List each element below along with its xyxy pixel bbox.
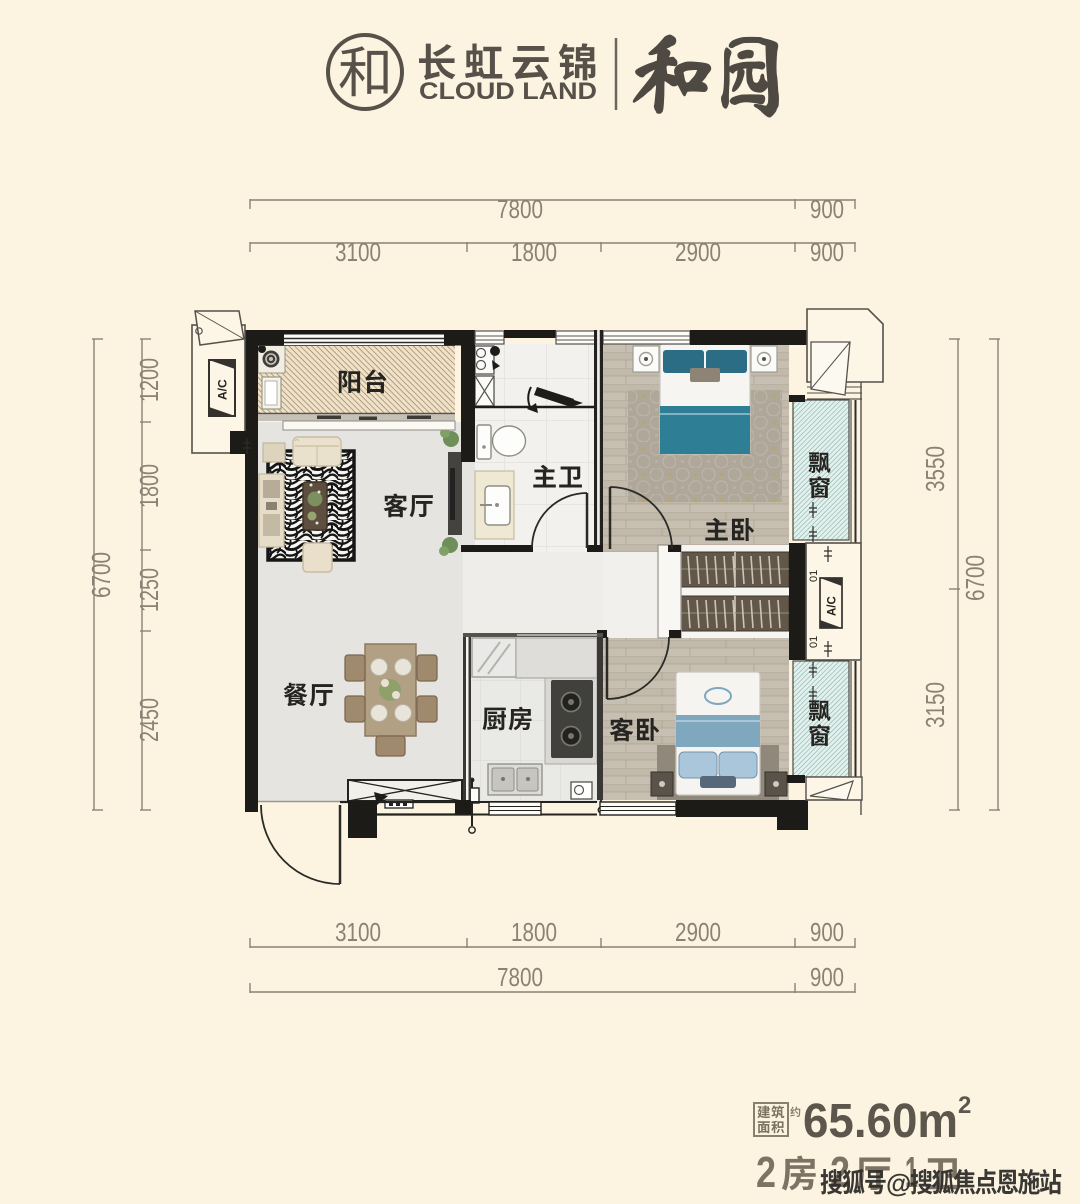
svg-text:2: 2 <box>958 1092 971 1119</box>
svg-text:3150: 3150 <box>920 682 950 728</box>
svg-text:900: 900 <box>810 962 844 992</box>
svg-text:900: 900 <box>810 917 844 947</box>
svg-text:65.60m: 65.60m <box>803 1095 958 1148</box>
svg-text:6700: 6700 <box>86 552 116 598</box>
svg-text:01: 01 <box>808 636 820 648</box>
svg-text:@: @ <box>886 1168 911 1198</box>
svg-text:1800: 1800 <box>134 464 164 508</box>
svg-text:7800: 7800 <box>497 962 543 992</box>
svg-text:6700: 6700 <box>960 555 990 601</box>
svg-text:3100: 3100 <box>335 917 381 947</box>
svg-text:01: 01 <box>808 570 820 582</box>
svg-text:A/C: A/C <box>216 379 230 400</box>
svg-text:1200: 1200 <box>134 358 164 402</box>
svg-text:7800: 7800 <box>497 194 543 224</box>
svg-text:CLOUD LAND: CLOUD LAND <box>419 78 597 105</box>
svg-text:1800: 1800 <box>511 917 557 947</box>
svg-text:2: 2 <box>756 1148 776 1197</box>
svg-text:A/C: A/C <box>827 596 839 616</box>
svg-text:2450: 2450 <box>134 698 164 742</box>
svg-text:900: 900 <box>810 237 844 267</box>
svg-text:3100: 3100 <box>335 237 381 267</box>
svg-text:1250: 1250 <box>134 568 164 612</box>
svg-text:2900: 2900 <box>675 917 721 947</box>
svg-text:2900: 2900 <box>675 237 721 267</box>
svg-text:3550: 3550 <box>920 446 950 492</box>
svg-text:1800: 1800 <box>511 237 557 267</box>
svg-text:900: 900 <box>810 194 844 224</box>
